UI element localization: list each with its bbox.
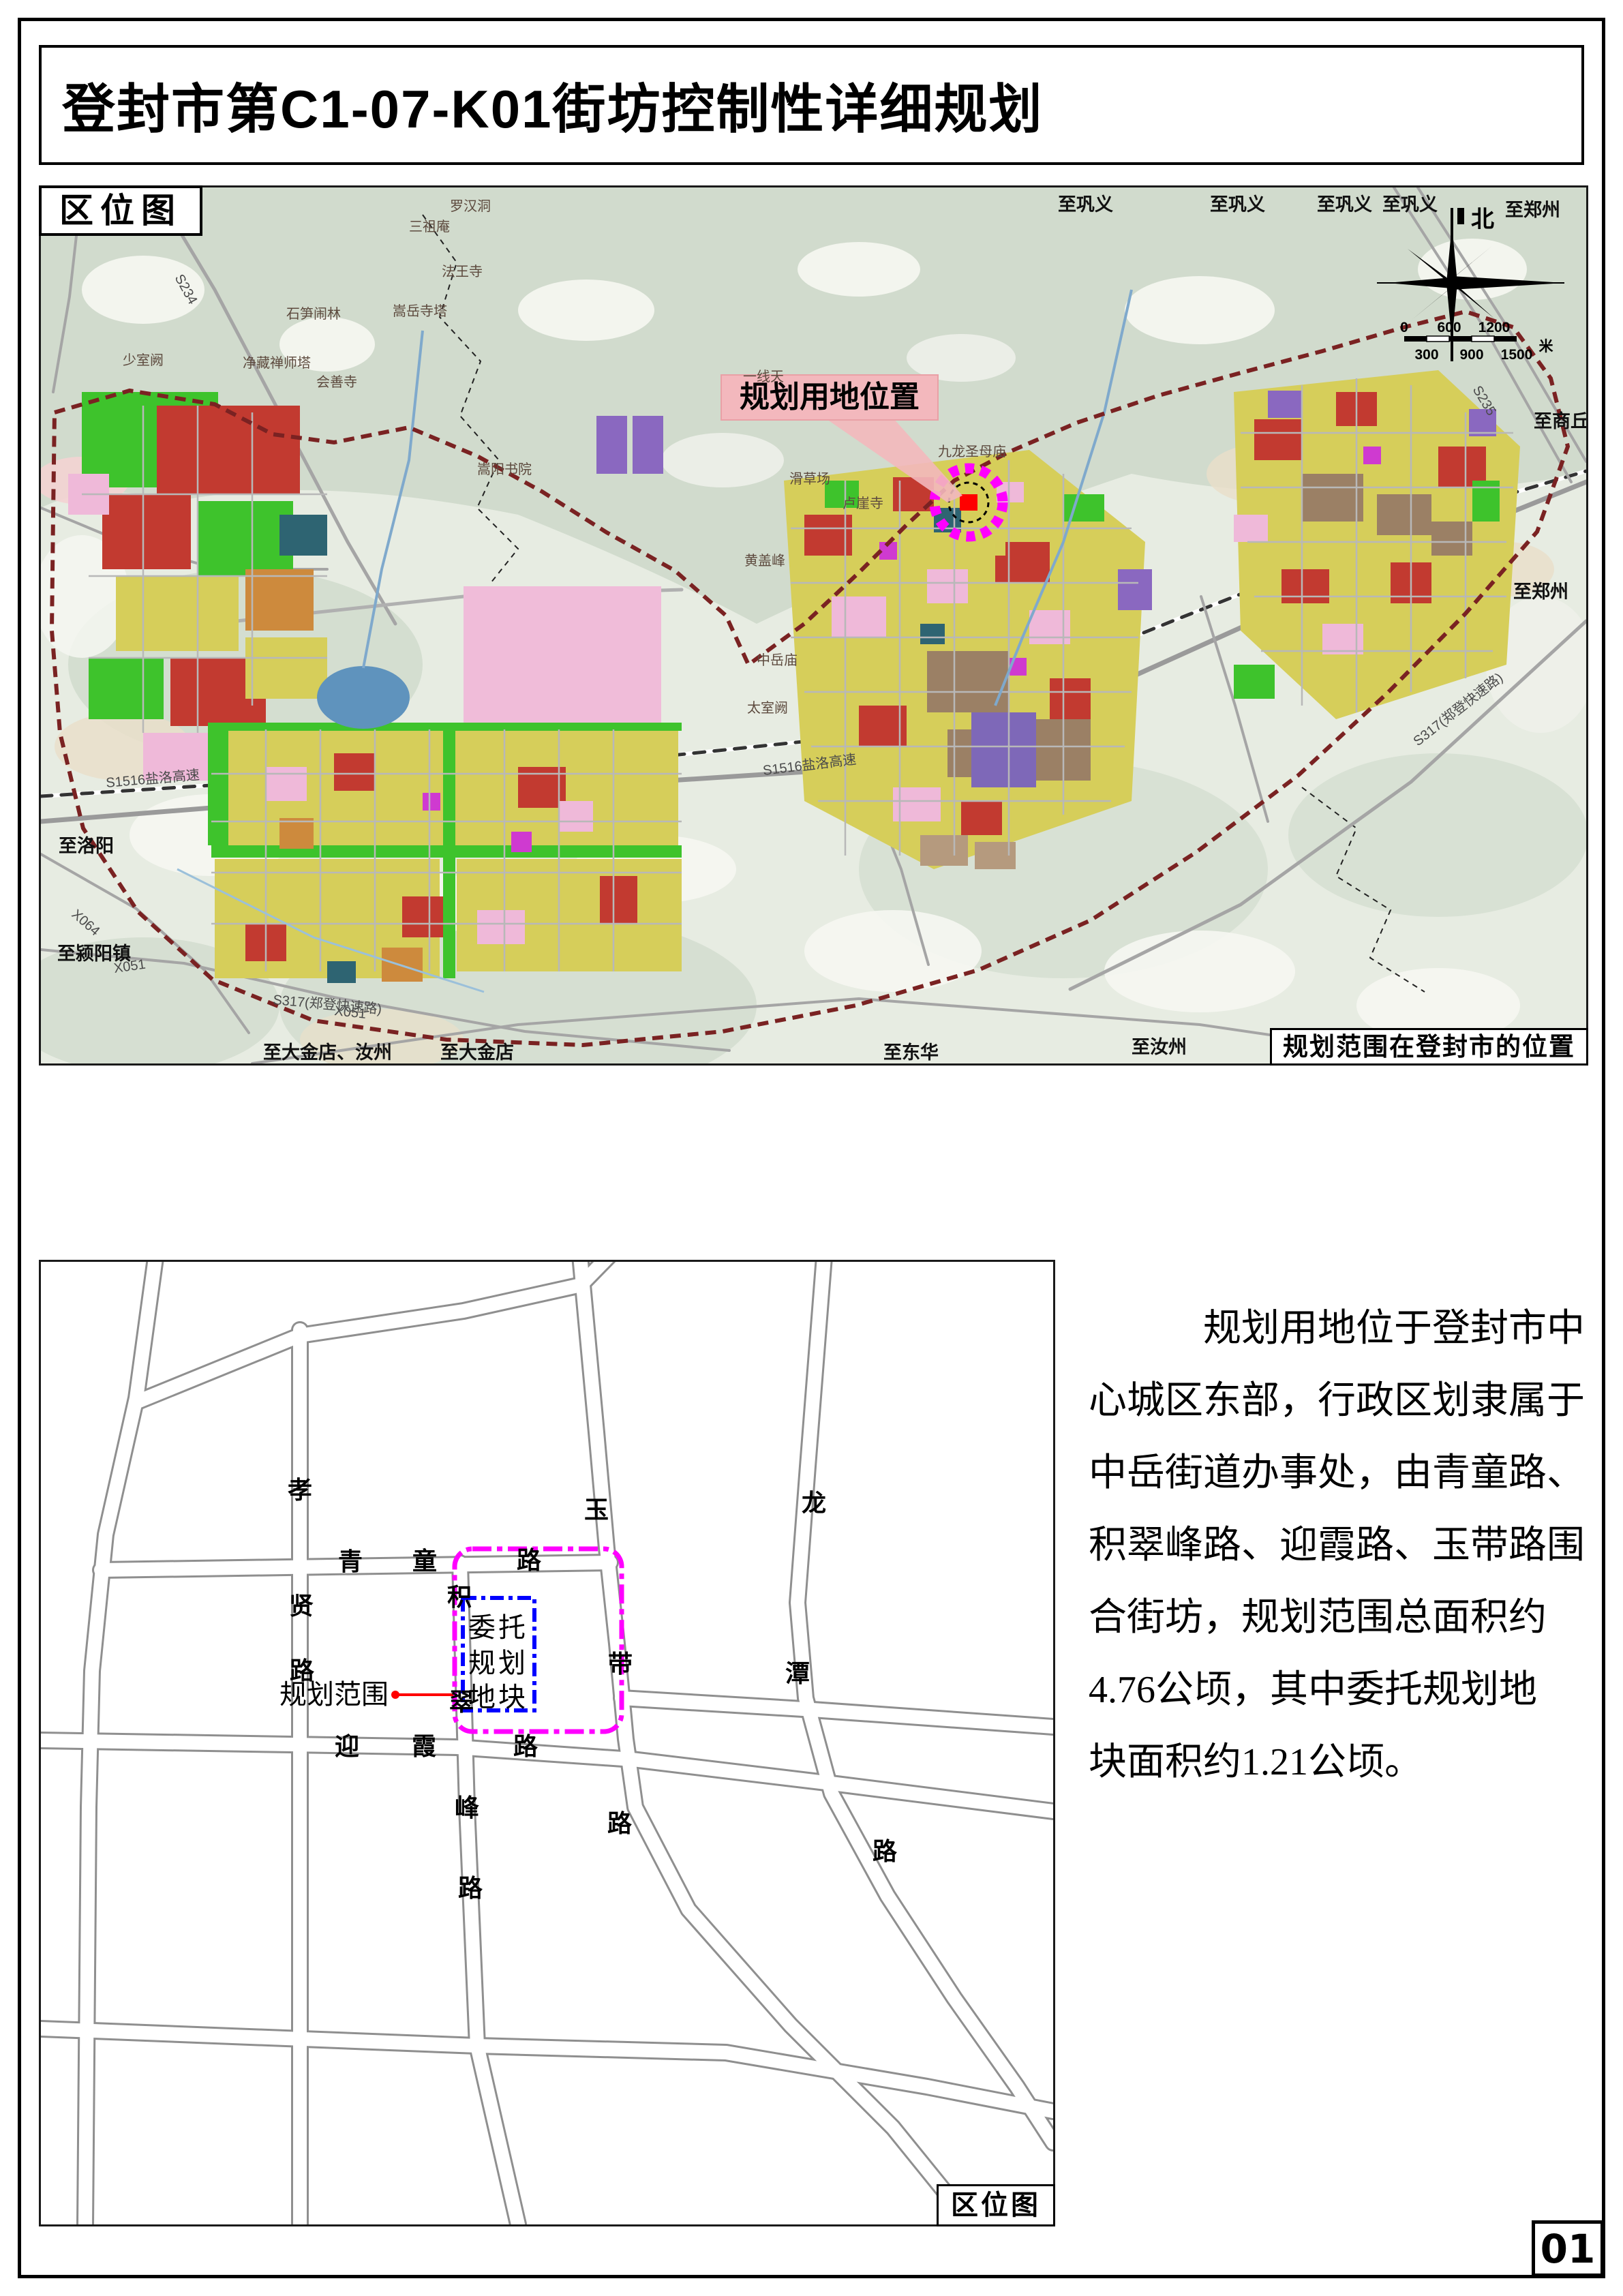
map-label: 0 xyxy=(1400,320,1408,335)
map-label: 带 xyxy=(608,1650,633,1678)
map-label: 至东华 xyxy=(883,1042,939,1063)
plan-document-page: { "page": { "title": "登封市第C1-07-K01街坊控制性… xyxy=(0,0,1623,2296)
map-label: 至郑州 xyxy=(1505,200,1560,220)
paragraph-line: 心城区东部，行政区划隶属于 xyxy=(1089,1365,1623,1437)
map-label: 石笋闹林 xyxy=(286,306,341,322)
paragraph-line: 合街坊，规划范围总面积约 xyxy=(1089,1582,1623,1654)
site-location-map-svg: 委托规划地块 规划范围 孝贤路青童路积翠峰路玉带路迎霞路龙潭路 xyxy=(41,1262,1053,2224)
map-label: 路 xyxy=(290,1657,315,1685)
paragraph-line: 积翠峰路、迎霞路、玉带路围 xyxy=(1089,1509,1623,1582)
map-label: 1500 xyxy=(1501,347,1533,363)
scale-bar xyxy=(1404,336,1517,342)
map-label: 潭 xyxy=(785,1659,810,1687)
map2-corner-title: 区位图 xyxy=(937,2184,1055,2226)
map-label: 卢崖寺 xyxy=(843,496,883,511)
map1-corner-title: 区位图 xyxy=(39,185,202,236)
map-label: 路 xyxy=(513,1732,539,1760)
map-label: 路 xyxy=(517,1546,542,1574)
paragraph-line: 块面积约1.21公顷。 xyxy=(1089,1726,1623,1798)
map-label: 路 xyxy=(873,1837,898,1865)
map-label: 童 xyxy=(412,1547,437,1575)
map-label: 嵩阳书院 xyxy=(477,462,532,477)
north-label: 北 xyxy=(1471,207,1494,232)
map-label: 青 xyxy=(338,1547,363,1575)
page-title: 登封市第C1-07-K01街坊控制性详细规划 xyxy=(62,67,1044,143)
map-label: 600 xyxy=(1437,320,1461,335)
map-label: 至大金店、汝州 xyxy=(263,1042,392,1063)
map-label: 孝 xyxy=(288,1476,312,1504)
map-label: 法王寺 xyxy=(442,264,483,280)
callout-label: 规划用地位置 xyxy=(740,380,920,414)
map-label: 一线天 xyxy=(743,369,784,384)
map1-caption: 规划范围在登封市的位置 xyxy=(1270,1028,1588,1066)
map-label: 少室阙 xyxy=(123,352,164,368)
commissioned-plot-label: 委托规划地块 xyxy=(468,1613,528,1712)
map-label: 会善寺 xyxy=(316,374,357,390)
map-label: 至大金店 xyxy=(440,1042,514,1063)
map-label: 路 xyxy=(458,1874,483,1902)
map-label: 地块 xyxy=(468,1682,528,1712)
map-label: 积 xyxy=(447,1583,472,1611)
map-label: 至巩义 xyxy=(1058,194,1113,215)
map-label: 路 xyxy=(607,1809,633,1837)
city-location-map-svg: 规划用地位置 北 060012003009001500米 至巩义至巩义至巩义至巩… xyxy=(41,187,1586,1063)
site-location-map: 委托规划地块 规划范围 孝贤路青童路积翠峰路玉带路迎霞路龙潭路 区位图 xyxy=(39,1260,1055,2226)
map-label: 九龙圣母庙 xyxy=(938,444,1006,459)
map-label: 翠 xyxy=(449,1688,474,1716)
map-label: 滑草场 xyxy=(789,471,830,487)
map-label: 至郑州 xyxy=(1513,581,1568,602)
lake xyxy=(317,666,410,729)
map-label: 太室阙 xyxy=(747,700,788,716)
map-label: 米 xyxy=(1539,339,1554,354)
page-number: 01 xyxy=(1541,2226,1596,2272)
map-label: 至汝州 xyxy=(1132,1037,1187,1057)
page-number-box: 01 xyxy=(1532,2220,1604,2277)
description-paragraph: 规划用地位于登封市中心城区东部，行政区划隶属于中岳街道办事处，由青童路、积翠峰路… xyxy=(1089,1293,1623,1798)
map-label: 1200 xyxy=(1478,320,1511,335)
title-box: 登封市第C1-07-K01街坊控制性详细规划 xyxy=(39,45,1584,165)
paragraph-line: 4.76公顷，其中委托规划地 xyxy=(1089,1654,1623,1726)
paragraph-line: 中岳街道办事处，由青童路、 xyxy=(1089,1437,1623,1509)
map-label: 峰 xyxy=(455,1794,479,1822)
map-label: 罗汉洞 xyxy=(450,198,491,214)
map-label: 迎 xyxy=(335,1732,359,1760)
planning-site-marker xyxy=(960,494,977,511)
map-label: 三祖庵 xyxy=(409,219,450,235)
map-label: 至巩义 xyxy=(1382,194,1438,215)
map-label: 中岳庙 xyxy=(757,652,798,668)
map-label: 霞 xyxy=(412,1732,436,1760)
city-location-map: 规划用地位置 北 060012003009001500米 至巩义至巩义至巩义至巩… xyxy=(39,185,1588,1066)
paragraph-line: 规划用地位于登封市中 xyxy=(1089,1293,1623,1365)
map-label: 至商丘 xyxy=(1534,411,1586,432)
map-label: 至巩义 xyxy=(1317,194,1372,215)
map-label: 300 xyxy=(1414,347,1438,363)
map-label: 黄盖峰 xyxy=(744,553,785,569)
map-label: 至洛阳 xyxy=(59,836,114,856)
map-label: 规划 xyxy=(468,1648,528,1678)
map-label: 至巩义 xyxy=(1210,194,1265,215)
map-label: 龙 xyxy=(802,1489,826,1517)
map-label: 玉 xyxy=(584,1496,609,1524)
map-label: 净藏禅师塔 xyxy=(243,355,311,371)
map-label: 贤 xyxy=(289,1592,314,1620)
map-label: 嵩岳寺塔 xyxy=(393,303,447,319)
map-label: 委托 xyxy=(468,1613,528,1643)
map-label: 900 xyxy=(1459,347,1483,363)
